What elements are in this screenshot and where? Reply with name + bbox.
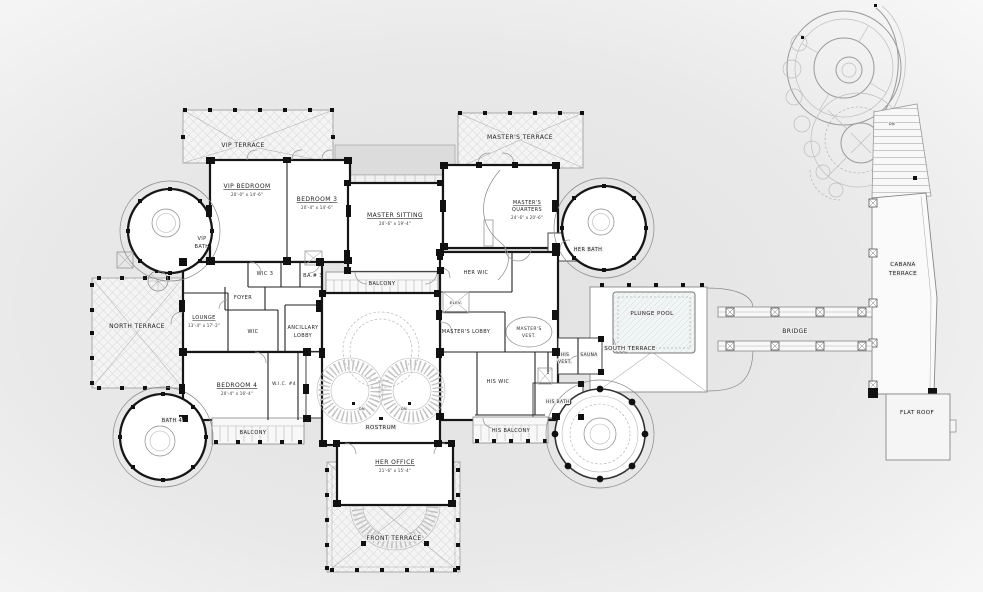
label-masters-quarters-1: MASTER'S [513, 200, 541, 206]
north-terrace [90, 276, 183, 390]
label-masters-terrace: MASTER'S TERRACE [487, 134, 553, 141]
label-wic-4: W.I.C. #4 [272, 381, 296, 387]
label-cabana-terrace-1: CABANA [890, 262, 915, 268]
dims-her-office: 21'-6" x 15'-4" [379, 468, 411, 473]
label-south-terrace: SOUTH TERRACE [604, 346, 656, 352]
cabana-terrace-deck [872, 193, 937, 394]
label-dn-left: DN [359, 407, 365, 411]
label-sauna: SAUNA [580, 352, 597, 358]
label-bridge: BRIDGE [782, 328, 808, 335]
label-cabana-terrace-2: TERRACE [888, 271, 917, 277]
label-vip-bath-2: BATH [195, 244, 210, 250]
label-his-bath: HIS BATH [546, 399, 570, 405]
flat-roof [886, 394, 956, 460]
dims-master-sitting: 20'-6" x 19'-4" [379, 221, 411, 226]
label-her-bath: HER BATH [574, 247, 602, 253]
her-office-room [337, 443, 453, 505]
vip-terrace [181, 108, 335, 163]
floor-plan-drawing: VIP TERRACE VIP BEDROOM 20'-0" x 14'-6" … [0, 0, 983, 592]
dims-vip-bedroom: 20'-0" x 14'-6" [231, 192, 263, 197]
label-balcony-top: BALCONY [369, 281, 396, 287]
label-rostrum: ROSTRUM [366, 425, 396, 431]
label-masters-vest-1: MASTER'S [516, 326, 541, 332]
floor-plan-page: VIP TERRACE VIP BEDROOM 20'-0" x 14'-6" … [0, 0, 983, 592]
label-foyer: FOYER [234, 295, 252, 301]
dims-bedroom-4: 20'-4" x 16'-4" [221, 391, 253, 396]
label-his-vest-1: HIS [561, 352, 570, 358]
label-master-sitting: MASTER SITTING [367, 212, 423, 219]
roof-strip [335, 145, 455, 185]
label-flat-roof: FLAT ROOF [900, 410, 934, 416]
label-his-vest-2: VEST. [558, 359, 572, 365]
label-masters-vest-2: VEST. [522, 333, 536, 339]
label-her-wic: HER WIC [464, 270, 489, 276]
vip-wing [210, 160, 350, 262]
label-his-wic: HIS WIC [487, 379, 510, 385]
master-sitting-room [348, 183, 443, 272]
label-balcony-bottom: BALCONY [240, 430, 267, 436]
label-dn-garden: DN [889, 122, 895, 126]
label-his-balcony: HIS BALCONY [492, 428, 531, 434]
label-vip-bath-1: VIP [197, 236, 206, 242]
dims-bedroom-3: 20'-4" x 14'-6" [301, 205, 333, 210]
label-ba-3: BA.# 3 [303, 273, 323, 279]
label-vip-terrace: VIP TERRACE [221, 142, 264, 149]
label-vip-bedroom: VIP BEDROOM [223, 183, 270, 190]
label-ancillary-lobby-2: LOBBY [294, 333, 313, 339]
label-masters-quarters-2: QUARTERS [512, 207, 542, 213]
label-dn-right: DN [401, 407, 407, 411]
dims-lounge: 13'-4" x 17'-2" [188, 323, 220, 328]
label-her-office: HER OFFICE [375, 459, 415, 466]
label-plunge-pool: PLUNGE POOL [630, 311, 674, 317]
label-wic: WIC [247, 329, 258, 335]
south-terrace [590, 283, 707, 392]
plunge-pool [613, 292, 695, 353]
label-bedroom-4: BEDROOM 4 [217, 382, 258, 389]
label-lounge: LOUNGE [192, 315, 215, 321]
label-front-terrace: FRONT TERRACE [366, 535, 421, 542]
label-north-terrace: NORTH TERRACE [109, 323, 165, 330]
dims-masters-quarters: 24'-6" x 20'-6" [511, 215, 543, 220]
label-elevator: ELEV. [450, 300, 462, 305]
grand-hall [317, 293, 445, 445]
label-masters-lobby: MASTER'S LOBBY [442, 329, 491, 335]
label-ancillary-lobby-1: ANCILLARY [287, 325, 319, 331]
label-bath-4: BATH 4 [162, 418, 182, 424]
label-wic-3: WIC 3 [257, 271, 274, 277]
label-bedroom-3: BEDROOM 3 [297, 196, 338, 203]
